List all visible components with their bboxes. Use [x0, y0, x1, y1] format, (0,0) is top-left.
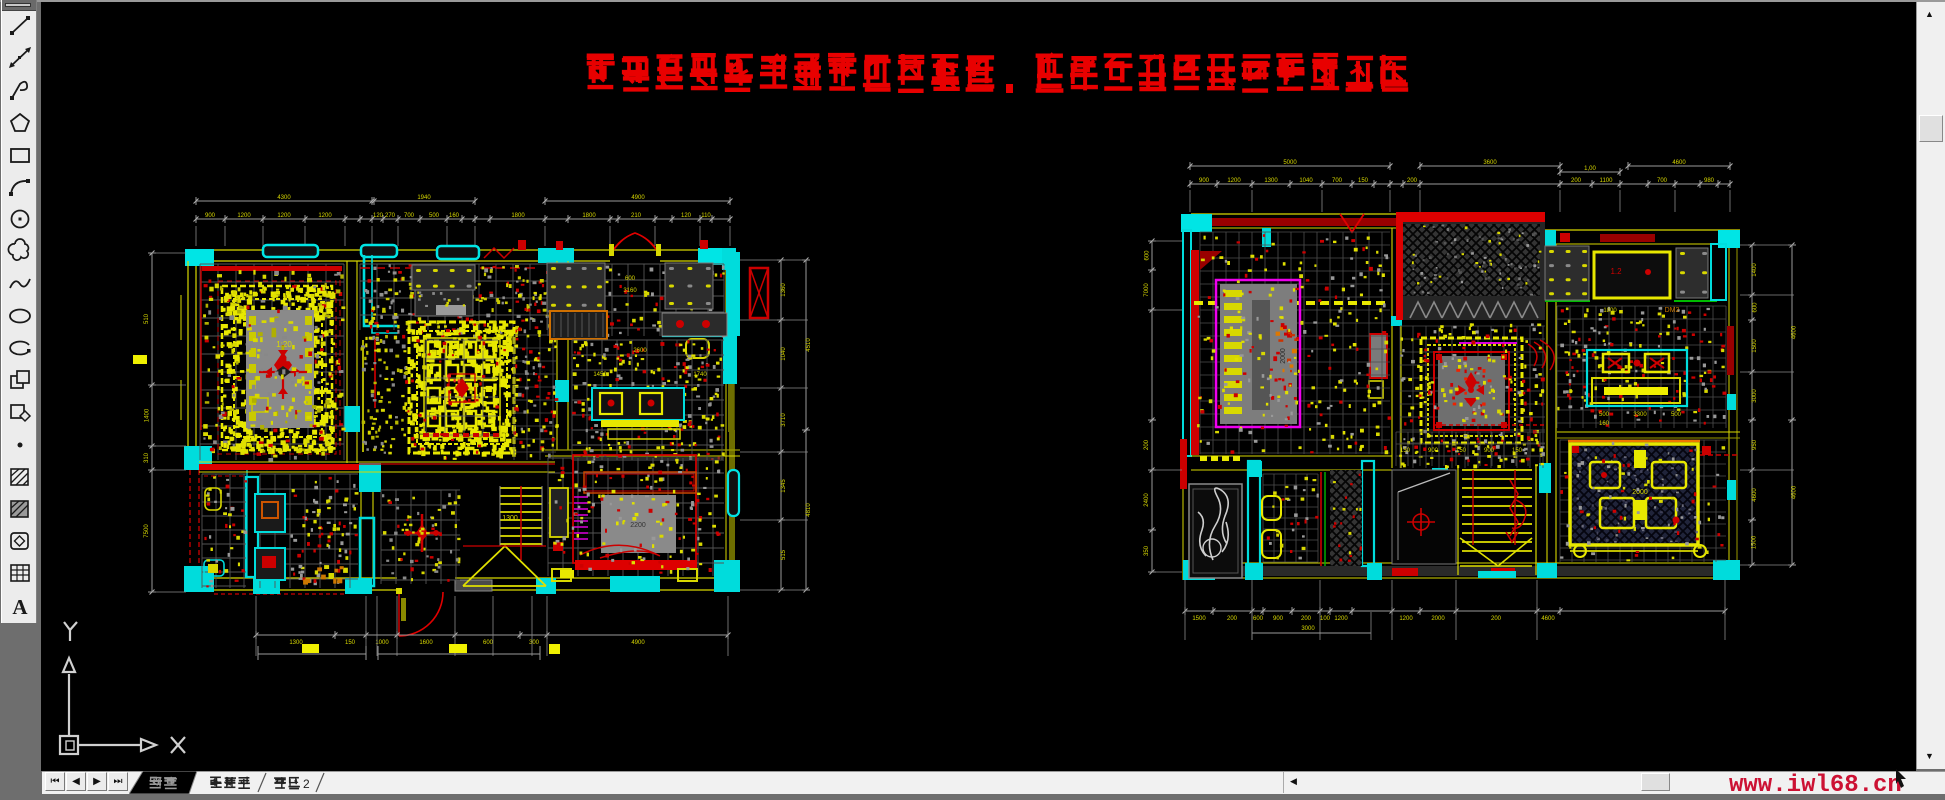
svg-text:900: 900 [1428, 448, 1439, 454]
svg-text:4600: 4600 [1792, 485, 1798, 499]
svg-text:200: 200 [1491, 616, 1502, 622]
svg-text:600: 600 [483, 640, 494, 646]
svg-text:700: 700 [1332, 178, 1343, 184]
svg-text:5000: 5000 [1283, 160, 1297, 166]
svg-text:2600: 2600 [633, 348, 647, 354]
svg-text:4900: 4900 [631, 640, 645, 646]
svg-text:3000: 3000 [1301, 626, 1315, 632]
svg-text:1940: 1940 [417, 195, 431, 201]
svg-text:1,00: 1,00 [1584, 166, 1596, 172]
svg-text:1740: 1740 [693, 372, 707, 378]
svg-text:4600: 4600 [1541, 616, 1555, 622]
svg-text:4300: 4300 [277, 195, 291, 201]
svg-text:200: 200 [1301, 616, 1312, 622]
svg-text:3600: 3600 [1483, 160, 1497, 166]
svg-text:700: 700 [404, 213, 415, 219]
svg-text:310: 310 [144, 452, 150, 463]
svg-text:120: 120 [373, 213, 384, 219]
svg-text:600: 600 [625, 276, 636, 282]
svg-text:500: 500 [1599, 412, 1610, 418]
svg-text:4510: 4510 [806, 338, 812, 352]
svg-text:350: 350 [1144, 545, 1150, 556]
svg-text:1800: 1800 [511, 213, 525, 219]
svg-text:160: 160 [1599, 421, 1610, 427]
svg-text:200: 200 [1571, 178, 1582, 184]
svg-text:1300: 1300 [1264, 178, 1278, 184]
svg-text:A: A [12, 595, 28, 619]
svg-text:900: 900 [1484, 448, 1495, 454]
svg-text:980: 980 [1704, 178, 1715, 184]
svg-text:DM2: DM2 [1665, 307, 1680, 314]
svg-text:300: 300 [529, 640, 540, 646]
svg-text:120: 120 [681, 213, 692, 219]
svg-text:150: 150 [1400, 448, 1411, 454]
svg-text:2: 2 [303, 777, 310, 791]
svg-text:270: 270 [385, 213, 396, 219]
svg-text:700: 700 [1657, 178, 1668, 184]
svg-text:160: 160 [449, 213, 460, 219]
svg-text:2000: 2000 [1431, 616, 1445, 622]
svg-text:1360: 1360 [781, 283, 787, 297]
svg-text:1450: 1450 [593, 372, 607, 378]
svg-text:500: 500 [1671, 412, 1682, 418]
svg-text:1100: 1100 [1600, 178, 1614, 184]
svg-text:4900: 4900 [631, 195, 645, 201]
svg-text:3710: 3710 [781, 413, 787, 427]
svg-text:900: 900 [1199, 178, 1210, 184]
svg-text:500: 500 [429, 213, 440, 219]
svg-text:200: 200 [1144, 439, 1150, 450]
svg-text:1200: 1200 [1334, 616, 1348, 622]
svg-text:4600: 4600 [1672, 160, 1686, 166]
svg-text:1200: 1200 [237, 213, 251, 219]
svg-text:4600: 4600 [1792, 325, 1798, 339]
svg-text:600: 600 [1145, 250, 1151, 261]
svg-text:1040: 1040 [1299, 178, 1313, 184]
svg-text:1800: 1800 [1603, 308, 1617, 314]
svg-text:150: 150 [1456, 448, 1467, 454]
svg-text:1500: 1500 [1192, 616, 1206, 622]
svg-text:900: 900 [1273, 616, 1284, 622]
svg-text:1000: 1000 [375, 640, 389, 646]
svg-text:2400: 2400 [1144, 493, 1150, 507]
svg-text:150: 150 [1512, 448, 1523, 454]
svg-text:1200: 1200 [277, 213, 291, 219]
svg-text:1200: 1200 [1399, 616, 1413, 622]
svg-text:900: 900 [205, 213, 216, 219]
svg-text:1345: 1345 [781, 479, 787, 493]
svg-text:110: 110 [701, 213, 711, 219]
svg-text:1.2: 1.2 [1610, 267, 1622, 276]
svg-text:950: 950 [1752, 439, 1758, 450]
svg-text:2000: 2000 [1632, 489, 1648, 496]
svg-text:100: 100 [1320, 616, 1331, 622]
svg-text:3000: 3000 [1752, 389, 1758, 403]
svg-text:150: 150 [345, 640, 356, 646]
svg-text:200: 200 [1407, 178, 1418, 184]
svg-text:2200: 2200 [630, 522, 646, 529]
svg-text:1500: 1500 [1752, 535, 1758, 549]
svg-text:1500: 1500 [1752, 339, 1758, 353]
svg-text:7500: 7500 [144, 524, 150, 538]
svg-text:515: 515 [781, 549, 787, 560]
svg-text:7000: 7000 [1144, 283, 1150, 297]
svg-text:3300: 3300 [1633, 412, 1647, 418]
svg-text:4810: 4810 [806, 503, 812, 517]
svg-text:1300: 1300 [502, 515, 518, 522]
svg-text:1400: 1400 [145, 408, 151, 422]
svg-text:210: 210 [631, 213, 642, 219]
svg-text:3160: 3160 [623, 288, 637, 294]
svg-text:1040: 1040 [781, 347, 787, 361]
svg-text:1600: 1600 [419, 640, 433, 646]
svg-text:1200: 1200 [1227, 178, 1241, 184]
svg-text:1300: 1300 [289, 640, 303, 646]
svg-text:600: 600 [1253, 616, 1264, 622]
svg-text:510: 510 [144, 313, 150, 324]
svg-text:4600: 4600 [1752, 488, 1758, 502]
svg-text:1800: 1800 [582, 213, 596, 219]
svg-text:600: 600 [1753, 302, 1759, 313]
svg-text:200: 200 [1227, 616, 1238, 622]
svg-text:150: 150 [1358, 178, 1369, 184]
svg-text:1400: 1400 [1752, 263, 1758, 277]
svg-text:2000: 2000 [1280, 348, 1287, 364]
svg-text:1200: 1200 [318, 213, 332, 219]
